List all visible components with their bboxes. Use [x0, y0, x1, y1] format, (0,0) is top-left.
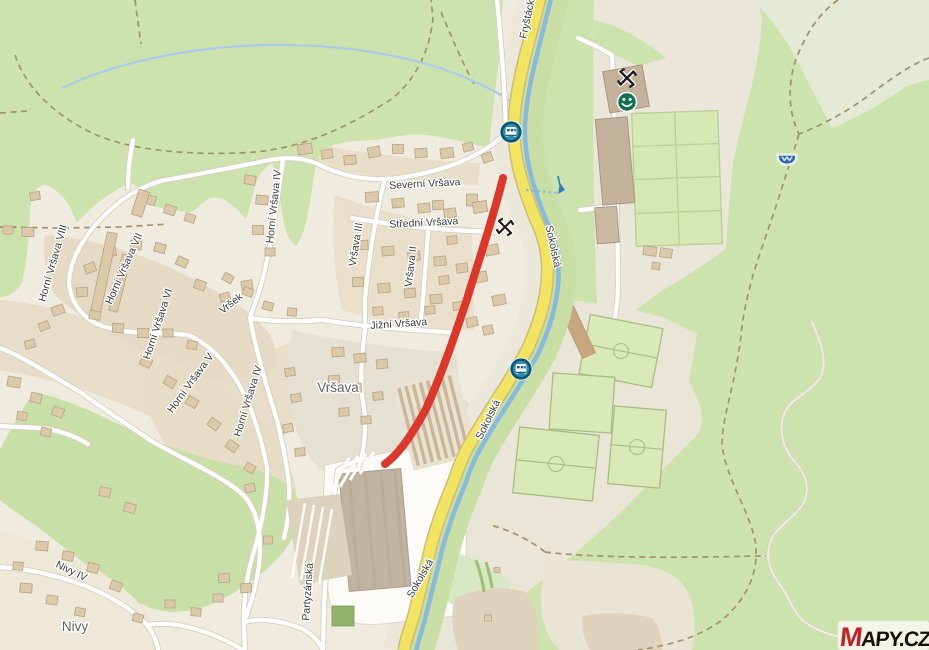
- svg-text:Nivy: Nivy: [62, 619, 88, 634]
- svg-text:Vršava: Vršava: [317, 380, 359, 395]
